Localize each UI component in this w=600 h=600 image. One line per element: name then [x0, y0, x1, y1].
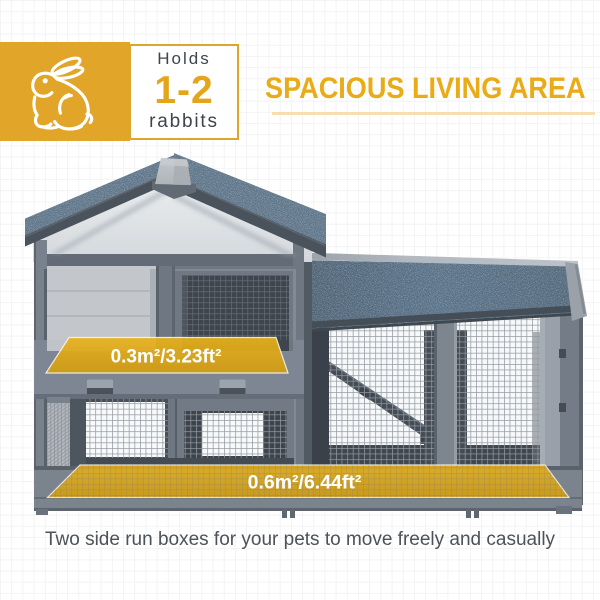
svg-text:0.3m²/3.23ft²: 0.3m²/3.23ft²: [111, 347, 222, 368]
svg-text:0.6m²/6.44ft²: 0.6m²/6.44ft²: [248, 472, 362, 494]
